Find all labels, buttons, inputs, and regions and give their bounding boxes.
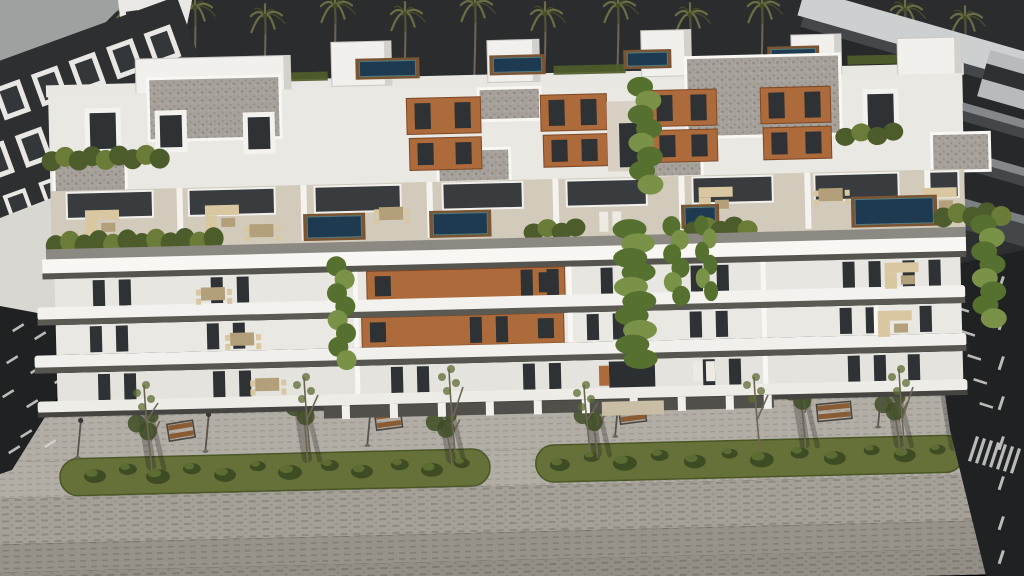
balcony-fin (760, 262, 766, 292)
ground-pier (486, 401, 494, 415)
timber-panel (763, 126, 832, 160)
floor-window (840, 308, 853, 334)
timber-panel (540, 94, 607, 132)
floor-window (919, 306, 932, 332)
floor-window (868, 261, 881, 287)
floor-window (98, 374, 111, 400)
rooftop-pool (489, 54, 545, 75)
timber-panel (406, 97, 481, 135)
floor-window (417, 366, 430, 392)
floor-window (523, 363, 536, 389)
floor-window (546, 269, 559, 295)
main-apartment-building (27, 22, 1016, 430)
upper-window (154, 110, 187, 153)
green-roof-strip (554, 64, 626, 75)
terrace-pool (851, 195, 938, 228)
floor-window (470, 317, 483, 343)
timber-panel (760, 86, 831, 124)
architectural-rendering (0, 0, 1024, 576)
floor-window (600, 268, 613, 294)
timber-panel (409, 137, 482, 171)
scene-canvas (0, 0, 1024, 576)
floor-window (587, 314, 600, 340)
terrace-pool (429, 210, 492, 239)
floor-window (908, 354, 921, 380)
terrace-glass-wall (442, 182, 523, 210)
timber-panel (362, 313, 565, 348)
timber-panel (543, 134, 608, 168)
entrance-timber-accent (599, 366, 609, 386)
balcony-fin (763, 356, 769, 386)
ground-pier (534, 400, 542, 414)
floor-window (928, 260, 941, 286)
floor-window (239, 370, 252, 396)
gravel-flat-roof (931, 132, 990, 171)
ground-pier (390, 404, 398, 418)
floor-window (690, 311, 703, 337)
balcony-fin (568, 313, 574, 343)
terrace-glass-wall (566, 179, 647, 207)
vine-column (970, 214, 1007, 329)
balcony-fin (566, 267, 572, 297)
floor-window (207, 323, 220, 349)
floor-window (391, 367, 404, 393)
floor-window (520, 270, 533, 296)
floor-window (237, 276, 250, 302)
ground-pier (438, 403, 446, 417)
vine-column (326, 256, 357, 371)
ground-pier (678, 397, 686, 411)
gravel-flat-roof (478, 87, 541, 121)
floor-window (496, 316, 509, 342)
floor-window (716, 265, 729, 291)
balcony-fin (761, 308, 767, 338)
floor-window (90, 326, 103, 352)
floor-window (549, 363, 562, 389)
floor-window (119, 279, 132, 305)
balcony-fin (355, 366, 361, 396)
floor-window (716, 311, 729, 337)
floor-window (848, 356, 861, 382)
floor-window (729, 358, 742, 384)
floor-window (93, 280, 106, 306)
floor-window (116, 325, 129, 351)
rooftop-pool (623, 49, 671, 69)
terrace-pool (303, 213, 366, 242)
ground-pier (342, 405, 350, 419)
upper-window (243, 112, 276, 155)
ground-pier (726, 396, 734, 410)
entrance-walkway (602, 400, 664, 416)
floor-window (842, 262, 855, 288)
floor-window (874, 355, 887, 381)
floor-window (213, 371, 226, 397)
rooftop-pool (355, 57, 419, 80)
